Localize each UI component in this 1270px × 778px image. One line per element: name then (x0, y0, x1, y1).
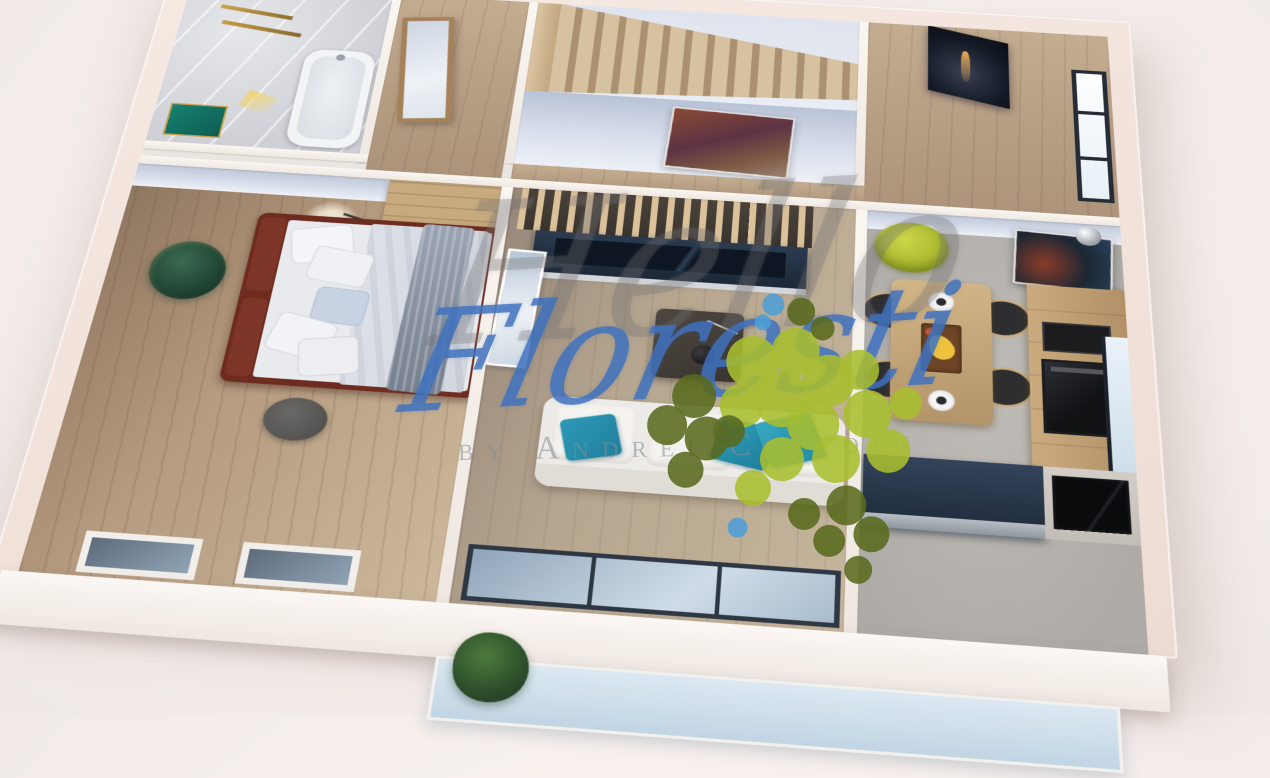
teal-pillow-1 (559, 413, 623, 461)
coffee-table (650, 308, 744, 383)
page: { "title": "3D apartment floor plan rend… (0, 0, 1270, 714)
fruit-tray (921, 323, 962, 374)
north-window (1071, 70, 1115, 204)
bedroom-window-1 (75, 530, 203, 580)
bedroom (18, 163, 504, 604)
living-room (449, 187, 858, 634)
towel-rail (220, 4, 293, 20)
bath-mat (162, 103, 228, 138)
table-vase (690, 345, 716, 365)
tv-screen (553, 238, 786, 278)
island-counter (862, 454, 1046, 539)
window-mullion (1078, 111, 1104, 116)
plate-1-food (936, 298, 946, 306)
pillow-4 (297, 336, 358, 377)
cooktop (1052, 475, 1132, 534)
dining-table (889, 278, 993, 426)
towel-rail-2 (221, 20, 301, 37)
kitchen-dining (857, 210, 1149, 657)
bananas (924, 332, 959, 362)
bedroom-window-2 (235, 542, 362, 592)
island-steel-face (862, 512, 1046, 539)
floorplan-scene (0, 0, 1187, 778)
apartment-interior (18, 0, 1149, 657)
double-bed (218, 212, 501, 398)
counter-light (1043, 466, 1141, 546)
upper-hall (864, 22, 1120, 226)
glass-door-mullion-1 (587, 557, 597, 605)
pouf (259, 396, 332, 443)
bathroom (143, 0, 393, 162)
table-decor-stick (707, 320, 738, 334)
plate-2-food (936, 396, 946, 405)
oven-handle (1051, 366, 1105, 374)
eiffel-tower-picture (928, 25, 1010, 109)
plate-2 (928, 389, 955, 412)
white-sofa (533, 395, 846, 507)
plate-1 (928, 291, 954, 312)
framed-mirror (397, 17, 455, 123)
fruit (925, 328, 935, 336)
abstract-red-painting (663, 107, 795, 180)
glass-door-mullion-2 (714, 567, 722, 615)
round-wall-art (141, 239, 232, 302)
light-patch (238, 90, 277, 115)
eiffel-tower-glow (961, 50, 971, 83)
bathtub-basin (294, 55, 368, 141)
window-mullion-2 (1080, 156, 1107, 161)
